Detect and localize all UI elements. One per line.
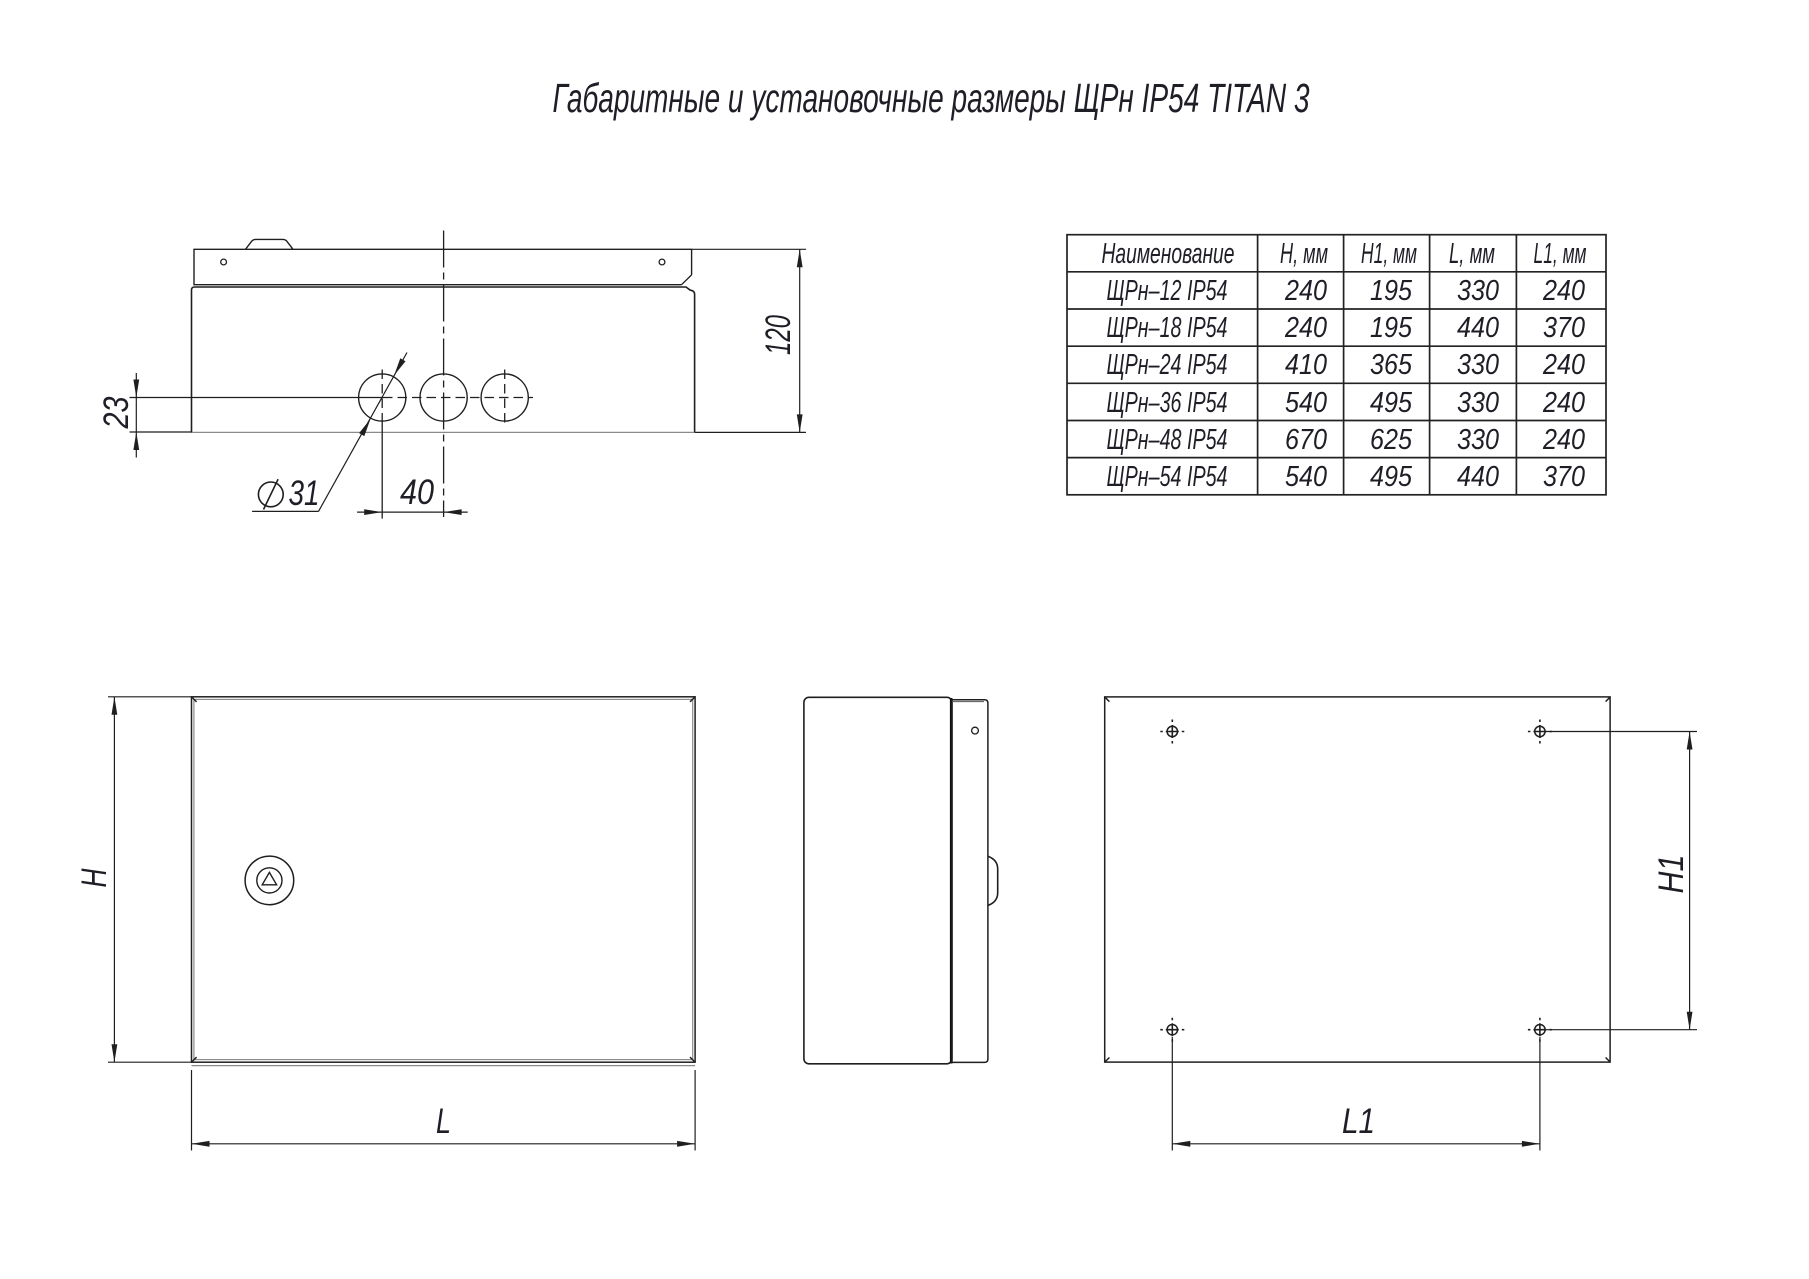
svg-text:ЩРн–24 IP54: ЩРн–24 IP54 xyxy=(1107,349,1228,381)
svg-text:L: L xyxy=(436,1102,451,1141)
svg-text:670: 670 xyxy=(1285,424,1327,456)
svg-text:540: 540 xyxy=(1285,387,1327,419)
svg-text:L1: L1 xyxy=(1342,1102,1375,1141)
svg-text:410: 410 xyxy=(1285,349,1327,381)
svg-text:440: 440 xyxy=(1457,312,1499,344)
svg-text:40: 40 xyxy=(400,473,434,512)
svg-text:ЩРн–36 IP54: ЩРн–36 IP54 xyxy=(1107,387,1228,419)
svg-text:31: 31 xyxy=(289,474,320,513)
svg-text:Н: Н xyxy=(75,868,114,888)
svg-text:120: 120 xyxy=(759,315,798,355)
svg-text:625: 625 xyxy=(1370,424,1412,456)
svg-text:Н, мм: Н, мм xyxy=(1280,238,1328,270)
svg-text:240: 240 xyxy=(1284,275,1327,307)
svg-text:ЩРн–18 IP54: ЩРн–18 IP54 xyxy=(1107,312,1228,344)
svg-text:ЩРн–54 IP54: ЩРн–54 IP54 xyxy=(1107,461,1228,493)
svg-text:Н1: Н1 xyxy=(1652,855,1691,894)
svg-text:330: 330 xyxy=(1457,349,1499,381)
svg-text:240: 240 xyxy=(1542,349,1585,381)
svg-text:195: 195 xyxy=(1370,275,1412,307)
svg-text:ЩРн–48 IP54: ЩРн–48 IP54 xyxy=(1107,424,1228,456)
svg-text:330: 330 xyxy=(1457,387,1499,419)
svg-text:ЩРн–12 IP54: ЩРн–12 IP54 xyxy=(1107,275,1228,307)
svg-text:L1, мм: L1, мм xyxy=(1534,238,1587,270)
svg-text:Наименование: Наименование xyxy=(1102,238,1235,270)
svg-text:195: 195 xyxy=(1370,312,1412,344)
svg-text:23: 23 xyxy=(97,396,136,429)
svg-text:L, мм: L, мм xyxy=(1449,238,1495,270)
svg-text:495: 495 xyxy=(1370,461,1412,493)
svg-text:370: 370 xyxy=(1543,312,1585,344)
svg-text:495: 495 xyxy=(1370,387,1412,419)
svg-text:540: 540 xyxy=(1285,461,1327,493)
svg-text:Габаритные и установочные разм: Габаритные и установочные размеры ЩРн IP… xyxy=(553,75,1310,121)
svg-text:240: 240 xyxy=(1542,424,1585,456)
svg-text:240: 240 xyxy=(1542,275,1585,307)
svg-text:365: 365 xyxy=(1370,349,1412,381)
svg-text:Н1, мм: Н1, мм xyxy=(1361,238,1417,270)
svg-text:330: 330 xyxy=(1457,275,1499,307)
svg-text:240: 240 xyxy=(1542,387,1585,419)
svg-text:370: 370 xyxy=(1543,461,1585,493)
svg-text:240: 240 xyxy=(1284,312,1327,344)
svg-text:330: 330 xyxy=(1457,424,1499,456)
svg-text:440: 440 xyxy=(1457,461,1499,493)
